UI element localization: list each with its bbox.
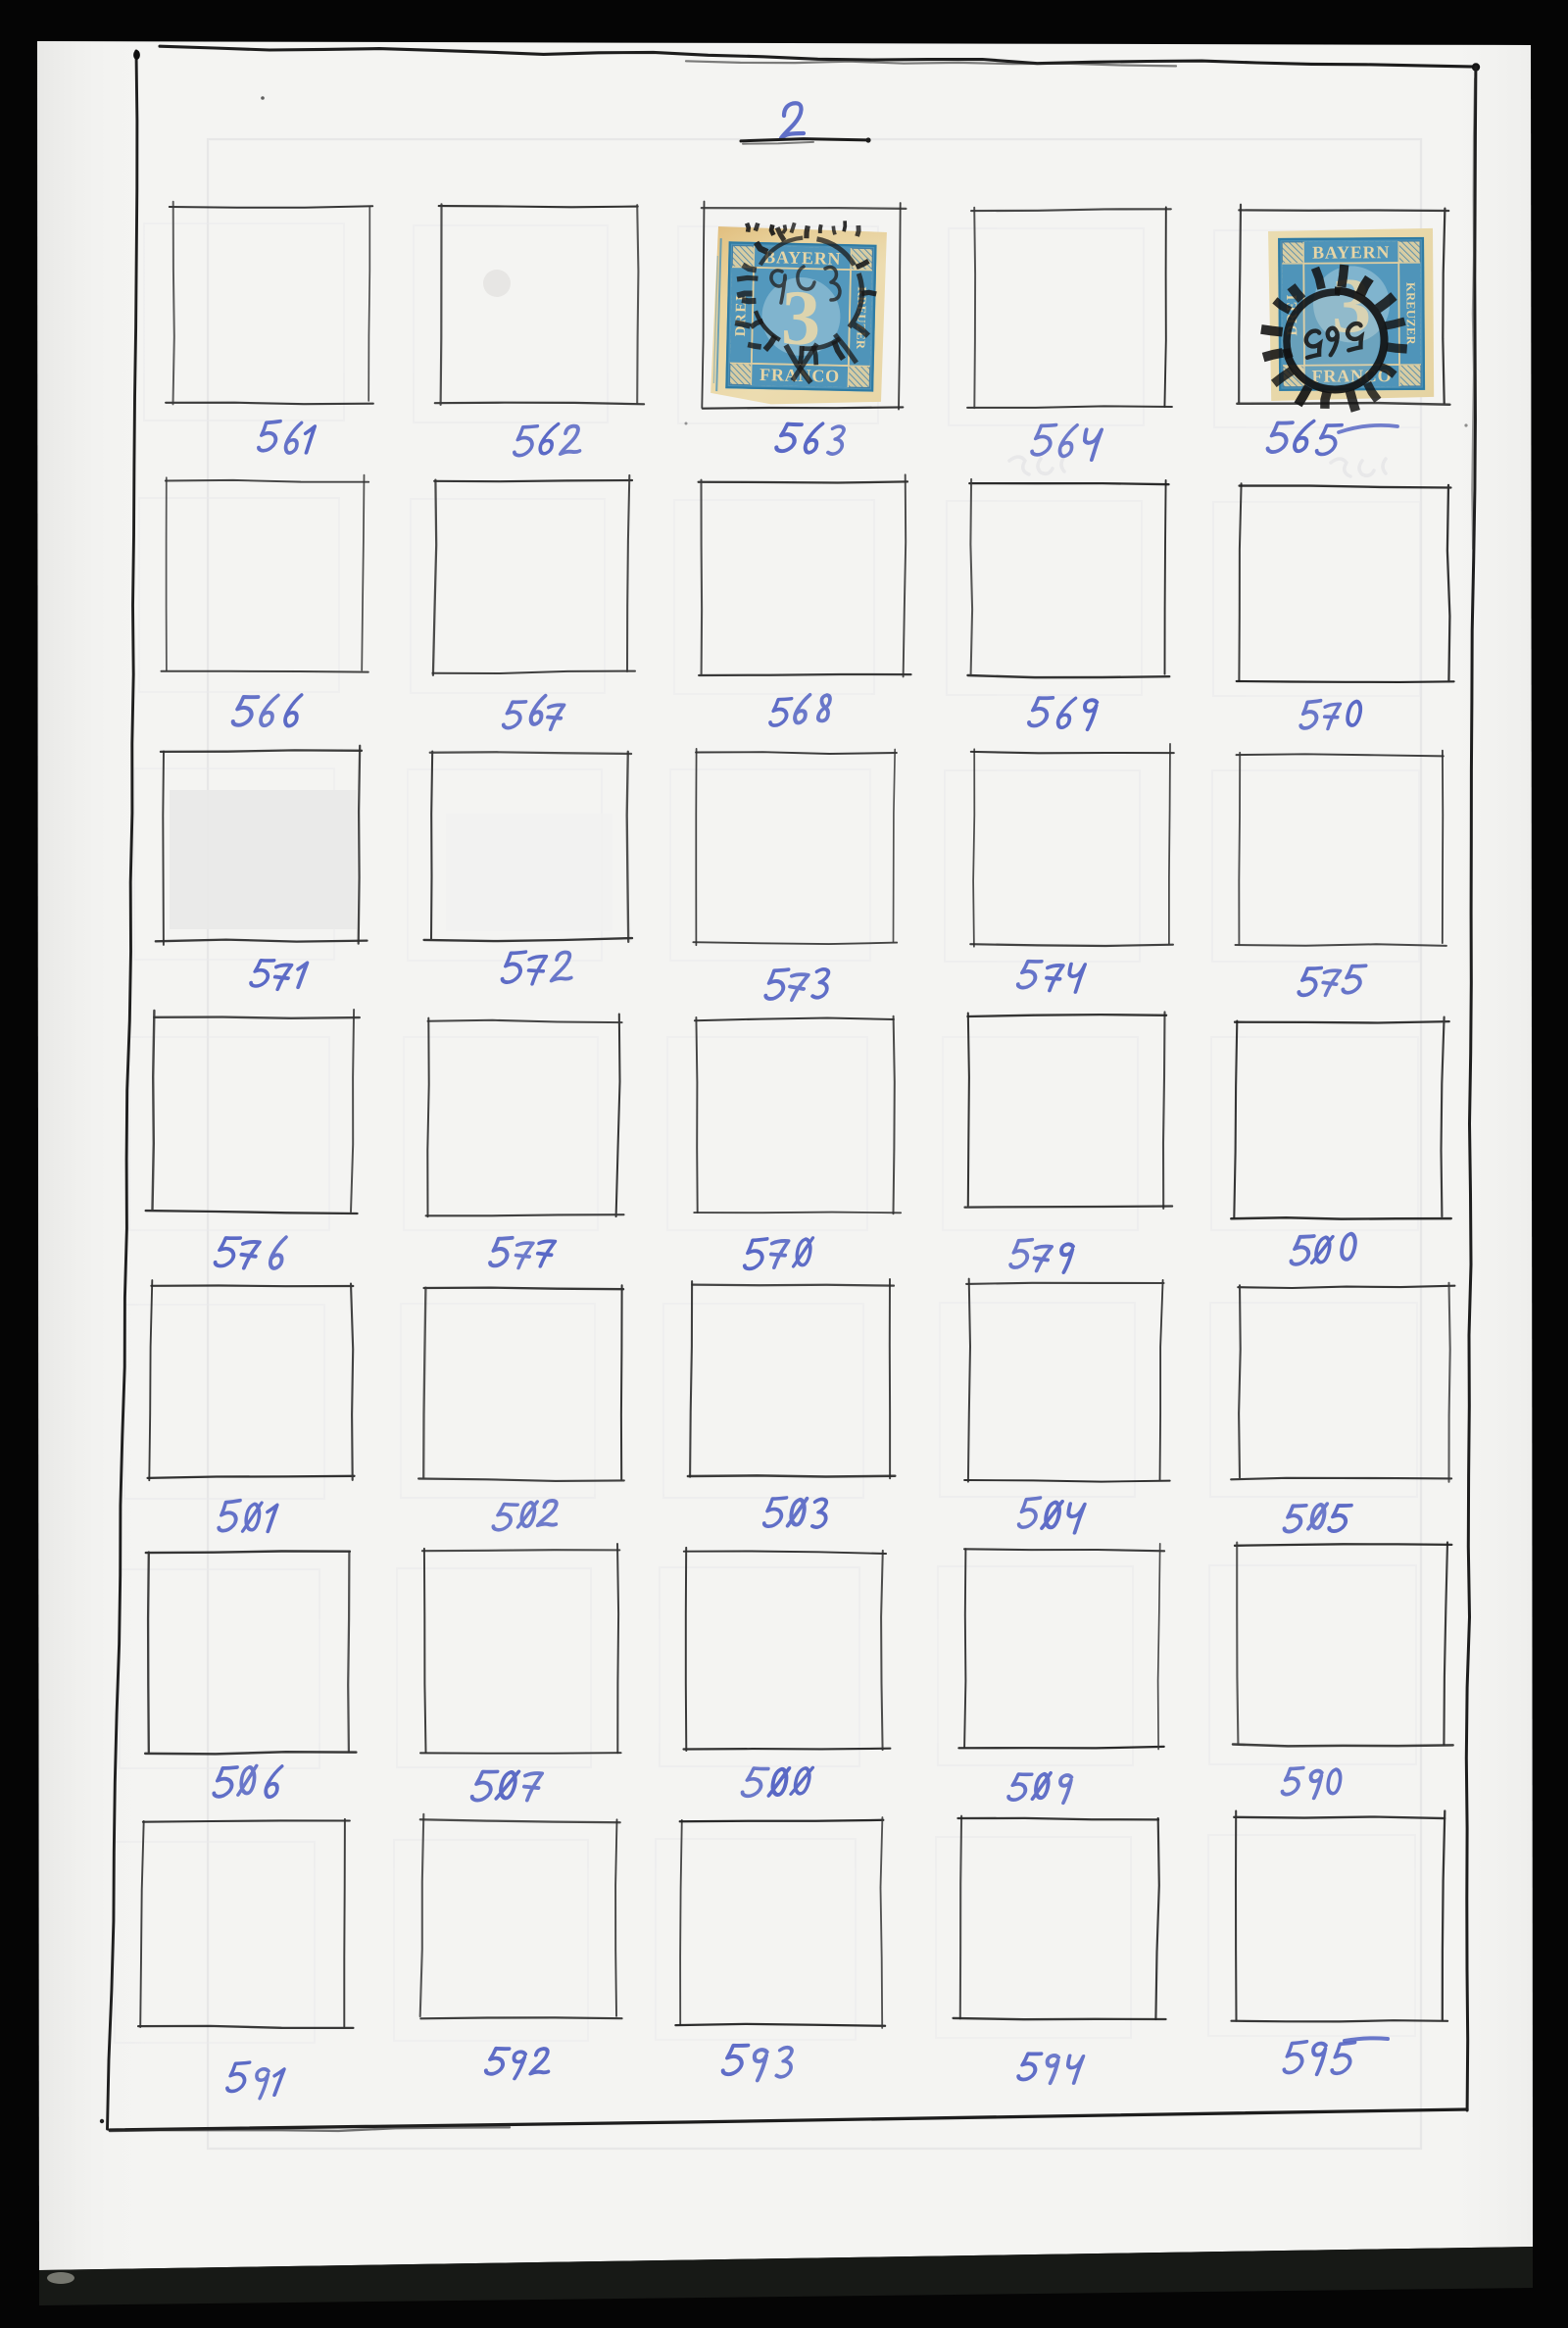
- svg-text:KREUZER: KREUZER: [1403, 282, 1417, 346]
- svg-text:BAYERN: BAYERN: [1312, 242, 1390, 263]
